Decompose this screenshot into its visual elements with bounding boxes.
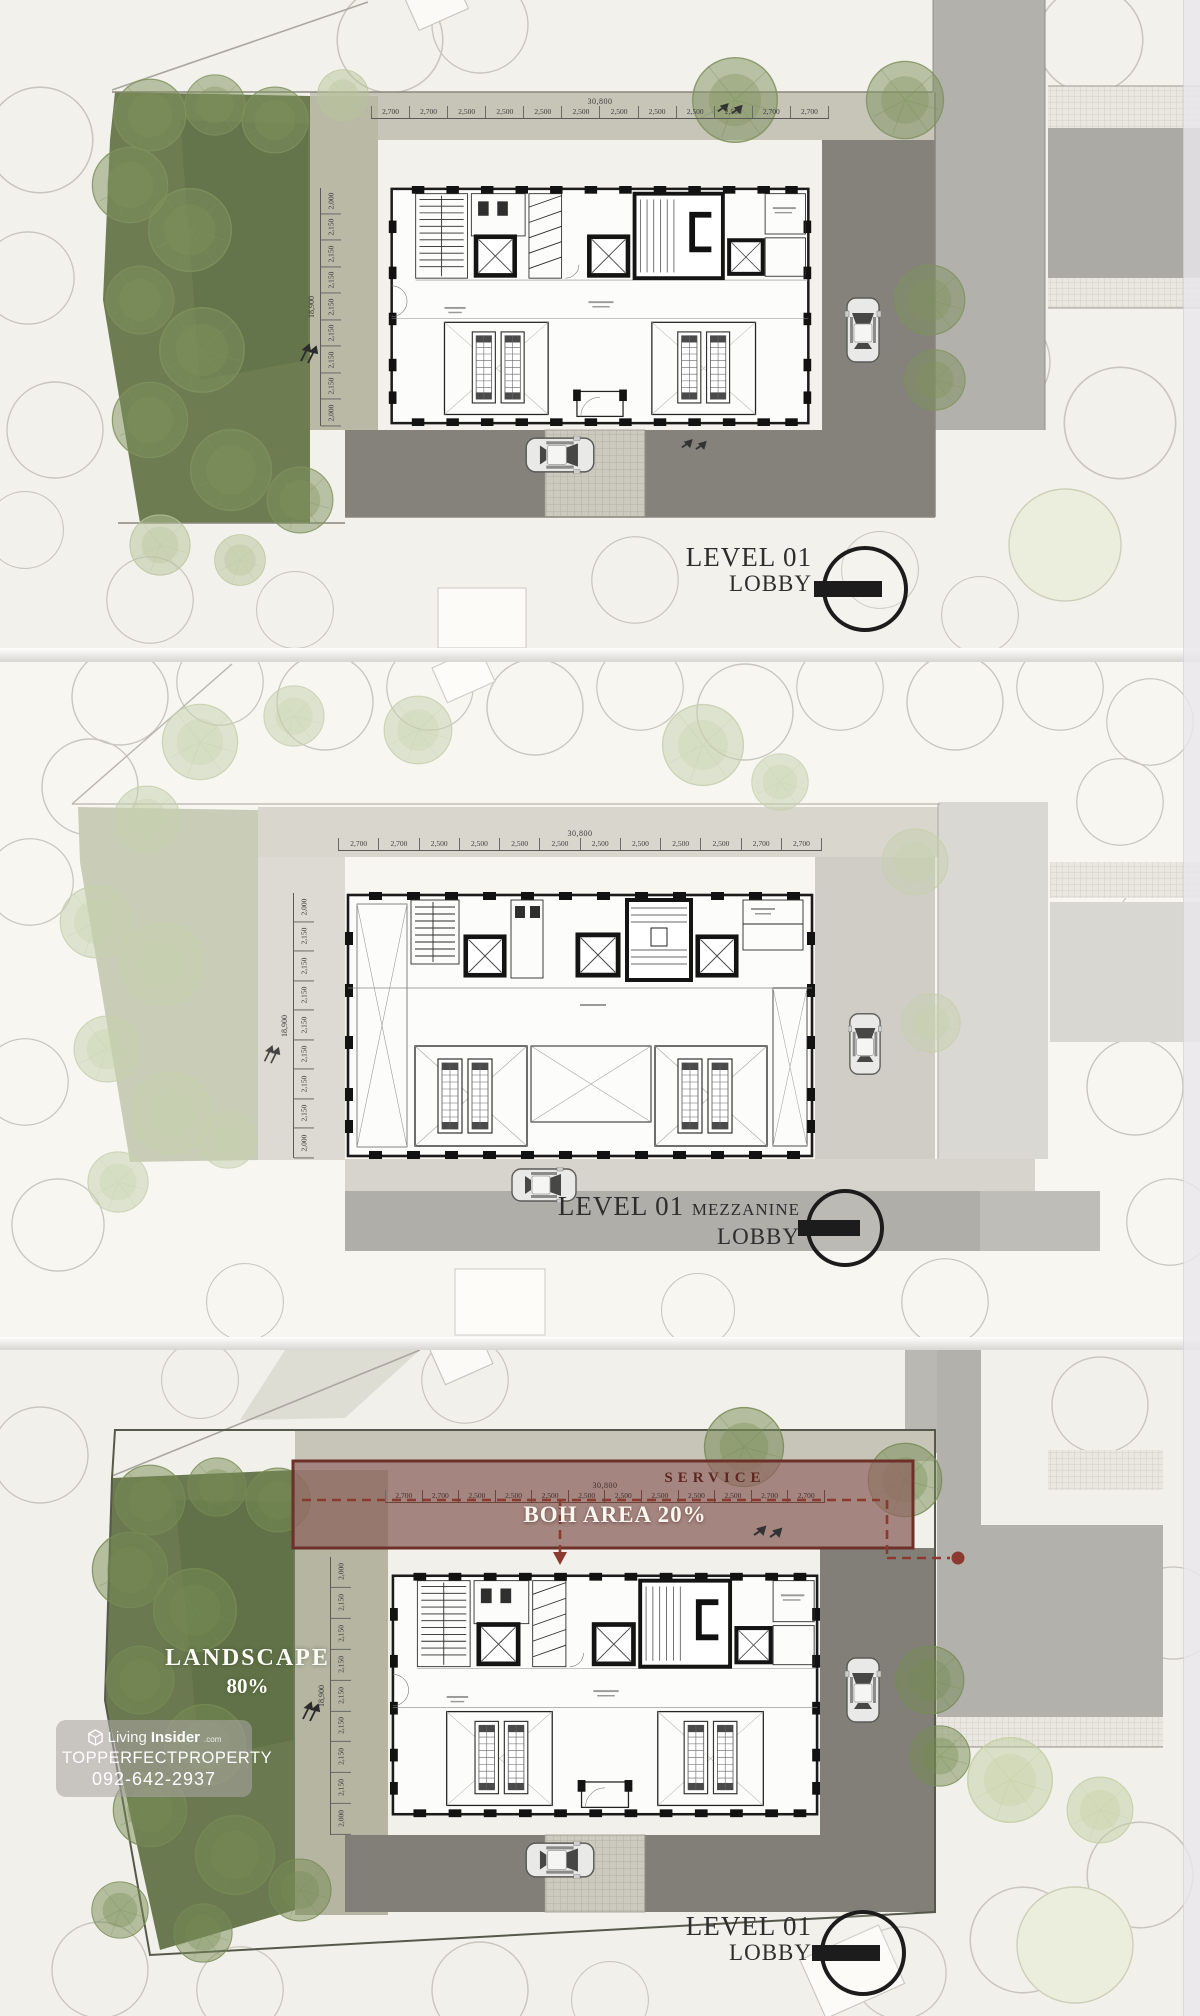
service-zone-label: SERVICE xyxy=(590,1470,840,1487)
dimension-segment: 2,150 xyxy=(321,320,341,346)
dimension-segment: 2,500 xyxy=(639,106,677,118)
dimension-segment: 2,150 xyxy=(331,1742,351,1773)
dimension-overall: 30,800 xyxy=(338,829,822,838)
dimension-segment: 2,150 xyxy=(331,1711,351,1742)
panel-title-level: LEVEL 01 MEZZANINE xyxy=(470,1192,800,1224)
dimension-segment: 2,700 xyxy=(379,838,419,850)
dimension-string-side: 18,900 2,0002,1502,1502,1502,1502,1502,1… xyxy=(293,893,314,1158)
dimension-segment: 2,150 xyxy=(321,373,341,399)
dimension-segment: 2,150 xyxy=(331,1588,351,1619)
watermark-phone: 092-642-2937 xyxy=(62,1769,246,1790)
sidewalk xyxy=(1050,862,1200,898)
dimension-segment: 2,000 xyxy=(294,1129,314,1158)
dimension-segment: 2,150 xyxy=(294,1070,314,1099)
south-plaza-fade xyxy=(980,1191,1100,1251)
neighbor-building-footprint xyxy=(438,588,526,648)
landscape-percent: 80% xyxy=(140,1674,355,1699)
level-marker-icon xyxy=(822,546,908,632)
panel-level01-mezzanine-lobby: 30,800 2,7002,7002,5002,5002,5002,5002,5… xyxy=(0,662,1200,1337)
panel-title-space: LOBBY xyxy=(520,571,812,596)
dimension-segment: 2,700 xyxy=(791,106,829,118)
dimension-segment: 2,500 xyxy=(677,106,715,118)
dimension-segment: 2,150 xyxy=(294,1099,314,1128)
dimension-segment: 2,150 xyxy=(321,347,341,373)
panel-title-space: LOBBY xyxy=(520,1940,812,1965)
landscape-area-label: LANDSCAPE 80% xyxy=(140,1645,355,1699)
panel-title: LEVEL 01 LOBBY xyxy=(520,1912,812,1965)
watermark-brand: LivingInsider.com xyxy=(62,1729,246,1746)
dimension-segments: 2,7002,7002,5002,5002,5002,5002,5002,500… xyxy=(371,106,829,119)
scan-edge xyxy=(1183,0,1200,2016)
dimension-segment: 2,150 xyxy=(294,922,314,951)
panel-level01-lobby: 30,800 2,7002,7002,5002,5002,5002,5002,5… xyxy=(0,0,1200,648)
panel-title-space: LOBBY xyxy=(470,1224,800,1249)
south-walkway xyxy=(345,1159,1035,1191)
dimension-segment: 2,000 xyxy=(331,1804,351,1835)
dimension-overall: 30,800 xyxy=(371,97,829,106)
dimension-segment: 2,500 xyxy=(486,106,524,118)
watermark-property-name: TOPPERFECTPROPERTY xyxy=(62,1749,246,1768)
floor-plan-level01 xyxy=(389,186,811,426)
dimension-segment: 2,500 xyxy=(459,1490,496,1502)
level-marker-icon xyxy=(820,1910,906,1996)
neighbor-building-footprint xyxy=(455,1269,545,1335)
dimension-segment: 2,500 xyxy=(581,838,621,850)
dimension-segment: 2,500 xyxy=(532,1490,569,1502)
dimension-segment: 2,500 xyxy=(524,106,562,118)
watermark: LivingInsider.com TOPPERFECTPROPERTY 092… xyxy=(56,1720,252,1797)
dimension-segment: 2,500 xyxy=(679,1490,716,1502)
panel-divider xyxy=(0,648,1200,662)
dimension-segment: 2,500 xyxy=(540,838,580,850)
level-marker-icon xyxy=(806,1189,884,1267)
dimension-segment: 2,700 xyxy=(410,106,448,118)
panel-divider xyxy=(0,1337,1200,1350)
panel-level01-lobby-analysis: 30,800 2,7002,7002,5002,5002,5002,5002,5… xyxy=(0,1350,1200,2016)
dimension-segment: 2,000 xyxy=(321,188,341,214)
dimension-segment: 2,500 xyxy=(701,838,741,850)
road xyxy=(938,802,1048,1159)
dimension-segment: 2,700 xyxy=(752,1490,789,1502)
dimension-segment: 2,500 xyxy=(460,838,500,850)
car-icon xyxy=(526,436,594,474)
dimension-segment: 2,500 xyxy=(621,838,661,850)
watermark-brand-light: Living xyxy=(108,1729,147,1746)
dimension-segment: 2,000 xyxy=(331,1557,351,1588)
north-walkway xyxy=(295,1430,935,1461)
dimension-overall: 18,900 xyxy=(280,1015,289,1037)
dimension-segment: 2,150 xyxy=(321,241,341,267)
watermark-brand-bold: Insider xyxy=(151,1729,200,1746)
dimension-segment: 2,150 xyxy=(331,1773,351,1804)
dimension-segment: 2,500 xyxy=(496,1490,533,1502)
dimension-segment: 2,500 xyxy=(569,1490,606,1502)
floor-plan-level01 xyxy=(390,1573,820,1817)
dimension-string-top: 30,800 2,7002,7002,5002,5002,5002,5002,5… xyxy=(338,829,822,851)
dimension-segment: 2,500 xyxy=(715,106,753,118)
landscape-label-text: LANDSCAPE xyxy=(140,1645,355,1672)
dimension-string-side: 18,900 2,0002,1502,1502,1502,1502,1502,1… xyxy=(320,188,341,426)
panel-title: LEVEL 01 MEZZANINE LOBBY xyxy=(470,1192,800,1249)
plan-sheet: 30,800 2,7002,7002,5002,5002,5002,5002,5… xyxy=(0,0,1200,2016)
dimension-segment: 2,500 xyxy=(715,1490,752,1502)
panel-title-mezzanine: MEZZANINE xyxy=(692,1200,800,1219)
neighbor-plot xyxy=(1050,902,1200,1042)
dimension-string-top: 30,800 2,7002,7002,5002,5002,5002,5002,5… xyxy=(371,97,829,119)
car-icon xyxy=(845,298,881,362)
dimension-segment: 2,000 xyxy=(294,893,314,922)
dimension-segment: 2,500 xyxy=(420,838,460,850)
dimension-segment: 2,500 xyxy=(600,106,638,118)
dimension-segment: 2,700 xyxy=(371,106,410,118)
dimension-segment: 2,700 xyxy=(753,106,791,118)
dimension-segment: 2,500 xyxy=(605,1490,642,1502)
dimension-segment: 2,150 xyxy=(321,214,341,240)
dimension-segment: 2,500 xyxy=(448,106,486,118)
dimension-overall: 18,900 xyxy=(307,296,316,318)
dimension-segments: 2,7002,7002,5002,5002,5002,5002,5002,500… xyxy=(338,838,822,851)
dimension-segment: 2,700 xyxy=(788,1490,825,1502)
dimension-segment: 2,700 xyxy=(385,1490,423,1502)
dimension-segment: 2,500 xyxy=(562,106,600,118)
cube-logo-icon xyxy=(87,1729,104,1746)
dimension-segment: 2,150 xyxy=(294,952,314,981)
panel-title: LEVEL 01 LOBBY xyxy=(520,543,812,596)
car-icon xyxy=(848,1014,882,1074)
panel-title-level: LEVEL 01 xyxy=(520,543,812,571)
dimension-segment: 2,150 xyxy=(294,1040,314,1069)
dimension-segment: 2,700 xyxy=(782,838,822,850)
watermark-brand-suffix: .com xyxy=(204,1735,221,1744)
panel-title-level-text: LEVEL 01 xyxy=(558,1191,684,1221)
panel-title-level: LEVEL 01 xyxy=(520,1912,812,1940)
dimension-segment: 2,150 xyxy=(294,981,314,1010)
dimension-segment: 2,000 xyxy=(321,400,341,426)
dimension-segment: 2,700 xyxy=(742,838,782,850)
dimension-segment: 2,700 xyxy=(423,1490,460,1502)
car-icon xyxy=(845,1658,881,1722)
dimension-segment: 2,150 xyxy=(294,1011,314,1040)
boh-area-label: BOH AREA 20% xyxy=(470,1502,760,1528)
dimension-segment: 2,500 xyxy=(661,838,701,850)
dimension-segment: 2,500 xyxy=(500,838,540,850)
dimension-segment: 2,500 xyxy=(642,1490,679,1502)
dimension-segment: 2,150 xyxy=(321,294,341,320)
car-icon xyxy=(526,1841,594,1879)
dimension-segment: 2,150 xyxy=(321,267,341,293)
dimension-segment: 2,700 xyxy=(338,838,379,850)
floor-plan-mezzanine xyxy=(345,892,815,1159)
